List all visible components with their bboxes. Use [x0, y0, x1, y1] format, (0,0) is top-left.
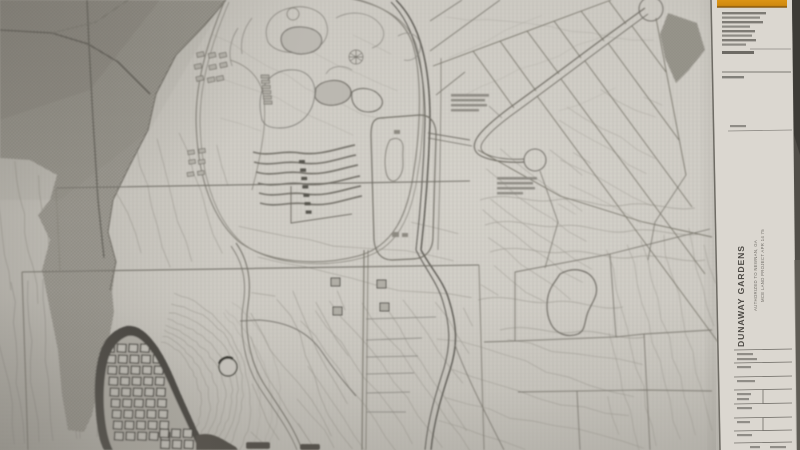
svg-text:DUNAWAY GARDENS: DUNAWAY GARDENS: [736, 245, 746, 347]
svg-text:AUTHORIZED TO NEWNAN, GA: AUTHORIZED TO NEWNAN, GA: [753, 240, 758, 311]
svg-text:MCE LAND PROJECT APR 14 75: MCE LAND PROJECT APR 14 75: [760, 229, 765, 302]
